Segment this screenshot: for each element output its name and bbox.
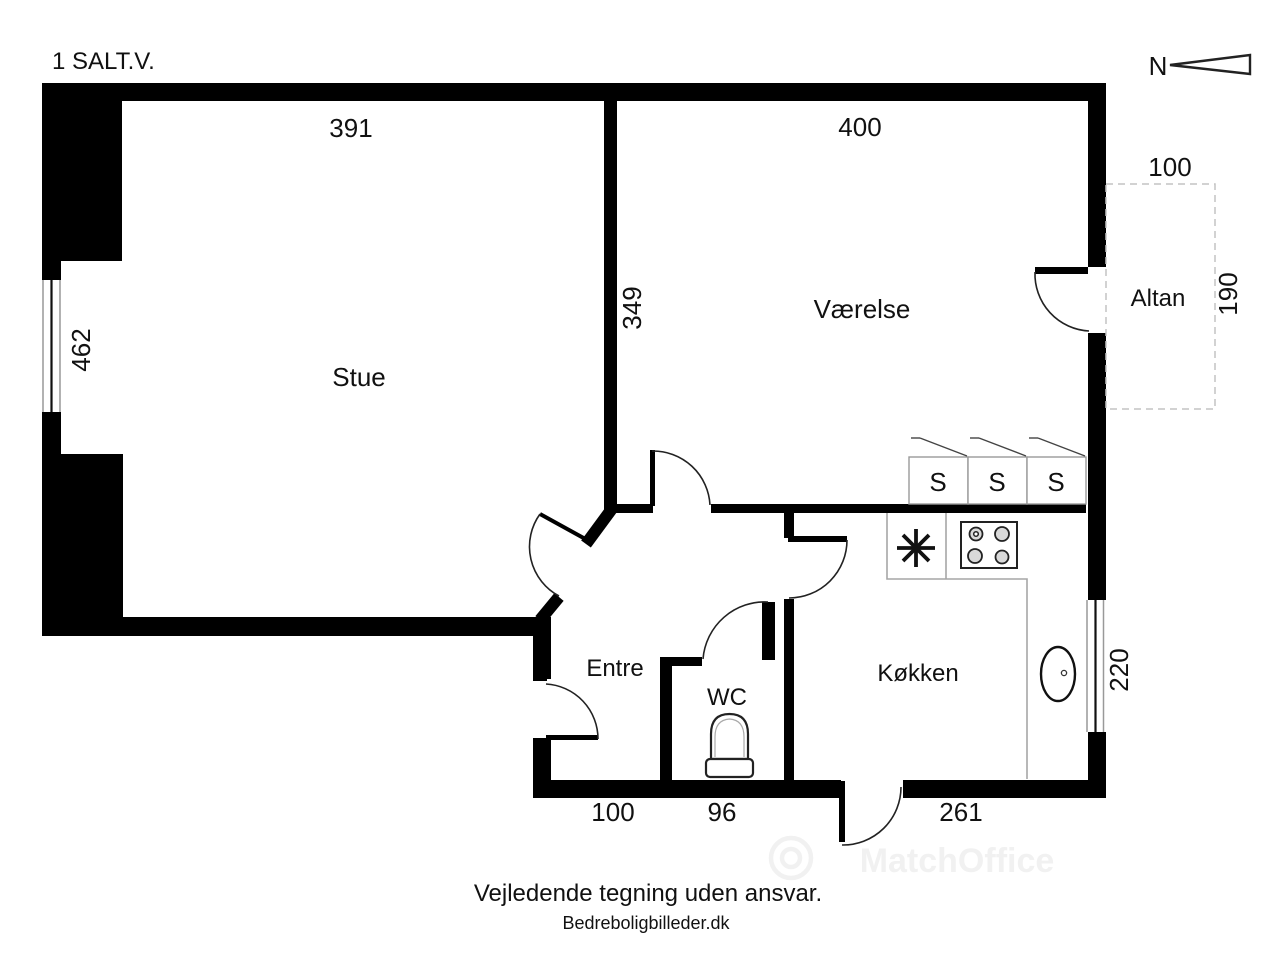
svg-text:Bedreboligbilleder.dk: Bedreboligbilleder.dk (562, 913, 730, 933)
svg-text:100: 100 (591, 797, 634, 827)
svg-text:MatchOffice: MatchOffice (860, 842, 1055, 880)
svg-text:N: N (1149, 51, 1168, 81)
svg-text:220: 220 (1104, 648, 1134, 691)
svg-text:100: 100 (1148, 152, 1191, 182)
svg-text:Stue: Stue (332, 362, 386, 392)
svg-text:Vejledende tegning uden ansvar: Vejledende tegning uden ansvar. (474, 880, 822, 907)
svg-text:462: 462 (66, 328, 96, 371)
svg-text:96: 96 (708, 797, 737, 827)
svg-text:S: S (988, 467, 1005, 497)
svg-text:Entre: Entre (586, 655, 643, 682)
svg-text:391: 391 (329, 113, 372, 143)
svg-text:349: 349 (617, 286, 647, 329)
svg-text:1 SALT.V.: 1 SALT.V. (52, 48, 155, 75)
svg-text:S: S (1047, 467, 1064, 497)
svg-text:WC: WC (707, 684, 747, 711)
svg-text:400: 400 (838, 112, 881, 142)
svg-text:Altan: Altan (1131, 285, 1186, 312)
svg-text:190: 190 (1213, 272, 1243, 315)
svg-text:S: S (929, 467, 946, 497)
svg-text:Køkken: Køkken (877, 660, 958, 687)
svg-text:261: 261 (939, 797, 982, 827)
svg-text:Værelse: Værelse (814, 294, 911, 324)
